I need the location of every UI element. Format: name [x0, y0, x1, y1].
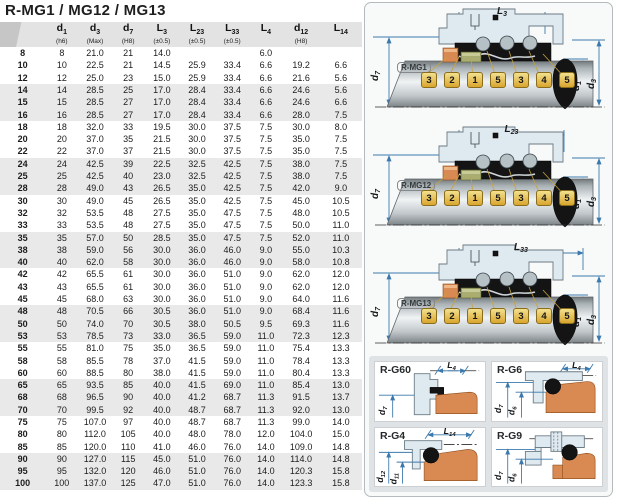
size-cell: 58 [0, 355, 45, 367]
value-cell: 23.0 [145, 170, 179, 182]
size-cell: 22 [0, 145, 45, 157]
value-cell [320, 47, 362, 59]
value-cell: 48.7 [179, 416, 215, 428]
value-cell: 75 [45, 416, 78, 428]
value-cell: 35.0 [179, 207, 215, 219]
value-cell [179, 47, 215, 59]
size-cell: 65 [0, 379, 45, 391]
value-cell: 6.6 [249, 59, 282, 71]
value-cell: 68 [45, 391, 78, 403]
table-row: 8080112.010540.048.078.012.0104.015.0 [0, 428, 362, 440]
value-cell: 13.3 [320, 367, 362, 379]
value-cell: 45.0 [145, 453, 179, 465]
dim-label-d7: d7 [370, 70, 382, 81]
value-cell: 6.0 [249, 47, 282, 59]
value-cell: 35.0 [179, 232, 215, 244]
column-header: d1(h6) [45, 22, 78, 47]
size-cell: 35 [0, 232, 45, 244]
column-header: d3(Max) [78, 22, 111, 47]
value-cell: 13.0 [320, 379, 362, 391]
value-cell: 37.5 [215, 133, 249, 145]
value-cell: 40 [112, 170, 145, 182]
value-cell: 26.5 [145, 195, 179, 207]
value-cell: 30.0 [145, 293, 179, 305]
size-cell: 8 [0, 47, 45, 59]
value-cell: 50 [112, 232, 145, 244]
table-row: 404062.05830.036.046.09.058.010.8 [0, 256, 362, 268]
table-row: 383859.05630.036.046.09.055.010.3 [0, 244, 362, 256]
table-row: 7575107.09740.048.768.711.399.014.0 [0, 416, 362, 428]
value-cell: 15 [45, 96, 78, 108]
value-cell: 14.0 [320, 416, 362, 428]
value-cell: 37.5 [215, 145, 249, 157]
value-cell: 17.0 [145, 109, 179, 121]
value-cell: 92.0 [282, 404, 319, 416]
value-cell: 59.0 [215, 330, 249, 342]
value-cell: 35 [112, 133, 145, 145]
card-label: R-G60 [380, 364, 411, 376]
value-cell: 61 [112, 268, 145, 280]
dim-label-top: L23 [505, 124, 519, 136]
value-cell: 96.5 [78, 391, 111, 403]
value-cell: 78.0 [215, 428, 249, 440]
size-cell: 32 [0, 207, 45, 219]
value-cell: 14 [45, 84, 78, 96]
callout-chip: 3 [421, 308, 437, 324]
value-cell: 33.4 [215, 96, 249, 108]
value-cell: 24.6 [282, 84, 319, 96]
size-cell: 18 [0, 121, 45, 133]
value-cell: 27.5 [145, 207, 179, 219]
value-cell: 69.0 [215, 379, 249, 391]
table-row: 161628.52717.028.433.46.628.07.5 [0, 109, 362, 121]
value-cell: 37.5 [215, 121, 249, 133]
size-cell: 68 [0, 391, 45, 403]
value-cell: 11.3 [249, 416, 282, 428]
callout-chip: 4 [536, 72, 552, 88]
value-cell: 11.0 [249, 342, 282, 354]
column-header: L3(±0.5) [145, 22, 179, 47]
callout-chip: 5 [559, 190, 575, 206]
value-cell: 30.0 [179, 145, 215, 157]
value-cell: 7.5 [249, 182, 282, 194]
column-header: L23(±0.5) [179, 22, 215, 47]
value-cell: 10.8 [320, 256, 362, 268]
table-row: 686896.59040.041.268.711.391.513.7 [0, 391, 362, 403]
value-cell: 57.0 [78, 232, 111, 244]
value-cell: 40.0 [145, 379, 179, 391]
value-cell: 14.8 [320, 441, 362, 453]
value-cell: 15.8 [320, 465, 362, 477]
size-cell: 48 [0, 305, 45, 317]
value-cell: 90 [45, 453, 78, 465]
value-cell: 76.0 [215, 441, 249, 453]
value-cell: 62.0 [78, 256, 111, 268]
value-cell: 97 [112, 416, 145, 428]
seal-diagram-r-mg13: L33 d7 d1 d3 R-MG13 3215345 [367, 240, 611, 357]
size-cell: 16 [0, 109, 45, 121]
value-cell: 115 [112, 453, 145, 465]
value-cell: 8.0 [320, 121, 362, 133]
value-cell: 48 [112, 219, 145, 231]
value-cell: 14.0 [249, 441, 282, 453]
callout-chip: 3 [421, 190, 437, 206]
value-cell: 48 [45, 305, 78, 317]
dim-label-l4: L4 [572, 362, 581, 372]
value-cell: 7.5 [320, 170, 362, 182]
value-cell: 46.0 [215, 256, 249, 268]
value-cell: 30.0 [145, 268, 179, 280]
value-cell: 7.5 [249, 219, 282, 231]
value-cell: 30.5 [145, 305, 179, 317]
size-cell: 10 [0, 59, 45, 71]
seal-diagram-r-mg12: L23 d7 d1 d3 R-MG12 3215345 [367, 122, 611, 239]
value-cell: 9.0 [320, 182, 362, 194]
value-cell: 10.5 [320, 207, 362, 219]
value-cell: 40.0 [145, 428, 179, 440]
callout-chip: 4 [536, 308, 552, 324]
value-cell: 22.5 [145, 158, 179, 170]
size-cell: 20 [0, 133, 45, 145]
value-cell: 53 [45, 330, 78, 342]
value-cell: 9.0 [249, 305, 282, 317]
card-label: R-G6 [497, 364, 522, 376]
size-cell: 43 [0, 281, 45, 293]
detail-card-r-g6: R-G6 d7 d6 L4 [491, 361, 603, 422]
value-cell: 6.6 [320, 59, 362, 71]
value-cell: 37.0 [145, 355, 179, 367]
callout-chip: 2 [444, 190, 460, 206]
value-cell: 11.0 [249, 379, 282, 391]
value-cell: 16 [45, 109, 78, 121]
value-cell: 25.0 [78, 72, 111, 84]
value-cell: 42.5 [215, 158, 249, 170]
size-cell: 55 [0, 342, 45, 354]
table-row: 151528.52717.028.433.46.624.66.6 [0, 96, 362, 108]
card-label: R-G4 [380, 430, 405, 442]
size-cell: 33 [0, 219, 45, 231]
callout-chip: 5 [559, 308, 575, 324]
value-cell: 80 [45, 428, 78, 440]
value-cell: 76.0 [215, 465, 249, 477]
detail-card-r-g60: R-G60 d7 L4 [374, 361, 486, 422]
value-cell: 28 [45, 182, 78, 194]
value-cell: 78.4 [282, 355, 319, 367]
value-cell: 104.0 [282, 428, 319, 440]
value-cell: 109.0 [282, 441, 319, 453]
value-cell: 11.0 [249, 330, 282, 342]
value-cell: 69.3 [282, 318, 319, 330]
value-cell: 20 [45, 133, 78, 145]
table-row: 202037.03521.530.037.57.535.07.5 [0, 133, 362, 145]
value-cell: 15.0 [145, 72, 179, 84]
value-cell: 99.0 [282, 416, 319, 428]
value-cell: 11.3 [249, 404, 282, 416]
value-cell: 59.0 [215, 367, 249, 379]
callout-chip: 2 [444, 308, 460, 324]
value-cell: 42.0 [282, 182, 319, 194]
value-cell: 33 [45, 219, 78, 231]
value-cell: 21 [112, 47, 145, 59]
value-cell: 41.5 [179, 379, 215, 391]
value-cell: 11.6 [320, 305, 362, 317]
value-cell: 37.0 [78, 133, 111, 145]
size-cell: 38 [0, 244, 45, 256]
dim-label-d12: d12 [375, 470, 387, 483]
value-cell: 75.4 [282, 342, 319, 354]
size-cell: 14 [0, 84, 45, 96]
value-cell: 45 [112, 195, 145, 207]
dim-label-l4: L4 [447, 362, 456, 372]
value-cell: 28.4 [179, 109, 215, 121]
value-cell: 11.0 [320, 232, 362, 244]
value-cell: 61 [112, 281, 145, 293]
value-cell: 40.0 [145, 404, 179, 416]
table-row: 707099.59240.048.768.711.392.013.0 [0, 404, 362, 416]
value-cell: 38 [45, 244, 78, 256]
value-cell: 25.9 [179, 59, 215, 71]
value-cell: 95 [45, 465, 78, 477]
callout-chip: 5 [490, 72, 506, 88]
size-cell: 28 [0, 182, 45, 194]
callout-chip: 5 [559, 72, 575, 88]
callout-chip: 1 [467, 72, 483, 88]
value-cell: 80.4 [282, 367, 319, 379]
value-cell: 33.4 [215, 59, 249, 71]
dim-label-d7: d7 [377, 406, 389, 415]
table-row: 8821.02114.06.0 [0, 47, 362, 59]
value-cell: 68.7 [215, 404, 249, 416]
value-cell: 42.5 [215, 195, 249, 207]
value-cell: 45.0 [282, 195, 319, 207]
value-cell: 28.0 [282, 109, 319, 121]
value-cell: 35.0 [282, 145, 319, 157]
detail-card-r-g9: R-G9 d7 d6 [491, 427, 603, 488]
size-cell: 85 [0, 441, 45, 453]
column-header: L14 [320, 22, 362, 47]
value-cell: 32 [45, 207, 78, 219]
value-cell: 58 [45, 355, 78, 367]
value-cell: 13.3 [320, 355, 362, 367]
table-row: 535378.57333.036.559.011.072.312.3 [0, 330, 362, 342]
value-cell: 36.0 [179, 256, 215, 268]
value-cell: 112.0 [78, 428, 111, 440]
value-cell: 15.8 [320, 477, 362, 489]
value-cell: 7.5 [320, 145, 362, 157]
value-cell: 47.5 [215, 219, 249, 231]
value-cell: 36.0 [179, 281, 215, 293]
value-cell: 46.0 [215, 244, 249, 256]
value-cell: 23 [112, 72, 145, 84]
value-cell: 14.8 [320, 453, 362, 465]
value-cell: 21.6 [282, 72, 319, 84]
value-cell: 28.5 [78, 109, 111, 121]
table-header-row: d1(h6)d3(Max)d7(H8)L3(±0.5)L23(±0.5)L33(… [0, 22, 362, 47]
value-cell: 49.0 [78, 195, 111, 207]
value-cell: 37 [112, 145, 145, 157]
value-cell: 70.5 [78, 305, 111, 317]
value-cell: 14.0 [145, 47, 179, 59]
value-cell: 64.0 [282, 293, 319, 305]
value-cell: 30.5 [145, 318, 179, 330]
value-cell: 7.5 [249, 232, 282, 244]
value-cell: 36.0 [179, 244, 215, 256]
table-row: 101022.52114.525.933.46.619.26.6 [0, 59, 362, 71]
value-cell: 28.5 [78, 84, 111, 96]
value-cell: 9.0 [249, 268, 282, 280]
value-cell: 75 [112, 342, 145, 354]
size-cell: 100 [0, 477, 45, 489]
value-cell: 30.0 [282, 121, 319, 133]
dim-label-l14: L14 [444, 428, 457, 438]
value-cell: 137.0 [78, 477, 111, 489]
value-cell: 50 [45, 318, 78, 330]
value-cell: 36.0 [179, 305, 215, 317]
value-cell: 33.4 [215, 72, 249, 84]
column-header [0, 22, 45, 47]
size-cell: 90 [0, 453, 45, 465]
value-cell: 32.5 [179, 158, 215, 170]
value-cell: 48.0 [179, 428, 215, 440]
value-cell: 6.6 [249, 109, 282, 121]
table-row: 606088.58038.041.559.011.080.413.3 [0, 367, 362, 379]
value-cell: 26.5 [145, 182, 179, 194]
callout-chip: 3 [421, 72, 437, 88]
callout-chip: 5 [490, 190, 506, 206]
value-cell [282, 47, 319, 59]
value-cell: 14.0 [249, 465, 282, 477]
page-title: R-MG1 / MG12 / MG13 [5, 2, 166, 19]
value-cell: 78 [112, 355, 145, 367]
value-cell: 63 [112, 293, 145, 305]
value-cell: 27.5 [145, 219, 179, 231]
value-cell: 38.0 [282, 158, 319, 170]
callout-chip: 1 [467, 190, 483, 206]
size-cell: 15 [0, 96, 45, 108]
value-cell: 85 [112, 379, 145, 391]
dim-label-top: L3 [497, 6, 507, 18]
value-cell: 27 [112, 96, 145, 108]
value-cell: 32.5 [179, 170, 215, 182]
value-cell: 35.0 [179, 195, 215, 207]
table-row: 323253.54827.535.047.57.548.010.5 [0, 207, 362, 219]
value-cell: 11.3 [249, 391, 282, 403]
value-cell: 47.5 [215, 232, 249, 244]
value-cell: 10.5 [320, 195, 362, 207]
value-cell: 42 [45, 268, 78, 280]
column-header: L4 [249, 22, 282, 47]
value-cell: 7.5 [249, 121, 282, 133]
value-cell: 36.0 [179, 293, 215, 305]
value-cell: 5.6 [320, 72, 362, 84]
value-cell: 21.5 [145, 133, 179, 145]
dim-label-d7: d7 [370, 188, 382, 199]
value-cell: 18 [45, 121, 78, 133]
size-cell: 25 [0, 170, 45, 182]
value-cell: 30 [45, 195, 78, 207]
value-cell: 12.0 [320, 281, 362, 293]
value-cell: 13.0 [320, 404, 362, 416]
value-cell: 5.6 [320, 84, 362, 96]
value-cell: 100 [45, 477, 78, 489]
value-cell: 45 [45, 293, 78, 305]
value-cell: 93.5 [78, 379, 111, 391]
value-cell: 7.5 [320, 109, 362, 121]
value-cell: 41.2 [179, 391, 215, 403]
value-cell: 41.5 [179, 367, 215, 379]
table-row: 353557.05028.535.047.57.552.011.0 [0, 232, 362, 244]
size-cell: 50 [0, 318, 45, 330]
value-cell: 62.0 [282, 268, 319, 280]
value-cell: 47.0 [145, 477, 179, 489]
value-cell: 15.0 [320, 428, 362, 440]
value-cell: 6.6 [249, 96, 282, 108]
table-row: 505074.07030.538.050.59.569.311.6 [0, 318, 362, 330]
value-cell: 9.5 [249, 318, 282, 330]
dimensions-table-wrap: d1(h6)d3(Max)d7(H8)L3(±0.5)L23(±0.5)L33(… [0, 22, 362, 490]
table-row: 424265.56130.036.051.09.062.012.0 [0, 268, 362, 280]
value-cell: 81.0 [78, 342, 111, 354]
column-header: d12(H8) [282, 22, 319, 47]
value-cell: 68.7 [215, 391, 249, 403]
value-cell: 11.6 [320, 293, 362, 305]
size-cell: 30 [0, 195, 45, 207]
value-cell: 30.0 [145, 281, 179, 293]
value-cell: 49.0 [78, 182, 111, 194]
value-cell: 11.0 [249, 355, 282, 367]
dim-label-d6: d6 [507, 472, 519, 481]
value-cell: 39 [112, 158, 145, 170]
value-cell: 68.0 [78, 293, 111, 305]
value-cell: 51.0 [215, 293, 249, 305]
size-cell: 12 [0, 72, 45, 84]
value-cell: 51.0 [215, 281, 249, 293]
value-cell: 43 [45, 281, 78, 293]
value-cell: 38.0 [179, 318, 215, 330]
value-cell: 125 [112, 477, 145, 489]
value-cell: 51.0 [179, 465, 215, 477]
value-cell: 58.0 [282, 256, 319, 268]
callout-row: 3215345 [421, 308, 575, 324]
value-cell: 7.5 [249, 158, 282, 170]
value-cell: 90 [112, 391, 145, 403]
seal-diagram-r-mg1: L3 d7 d1 d3 R-MG1 3215345 [367, 4, 611, 121]
value-cell: 85.5 [78, 355, 111, 367]
value-cell: 46.0 [179, 441, 215, 453]
value-cell: 38.0 [145, 367, 179, 379]
value-cell: 99.5 [78, 404, 111, 416]
value-cell: 7.5 [320, 158, 362, 170]
value-cell: 70 [112, 318, 145, 330]
table-row: 181832.03319.530.037.57.530.08.0 [0, 121, 362, 133]
value-cell: 21.5 [145, 145, 179, 157]
value-cell: 17.0 [145, 84, 179, 96]
dim-label-top: L33 [514, 242, 528, 254]
column-header: d7(H8) [112, 22, 145, 47]
value-cell: 7.5 [320, 133, 362, 145]
value-cell: 48.7 [179, 404, 215, 416]
dim-label-d7: d7 [493, 404, 505, 413]
value-cell: 7.5 [249, 170, 282, 182]
table-row: 656593.58540.041.569.011.085.413.0 [0, 379, 362, 391]
value-cell: 60 [45, 367, 78, 379]
value-cell: 36.0 [179, 268, 215, 280]
value-cell: 55.0 [282, 244, 319, 256]
value-cell: 30.0 [145, 256, 179, 268]
card-label: R-G9 [497, 430, 522, 442]
value-cell: 12 [45, 72, 78, 84]
table-row: 252542.54023.032.542.57.538.07.5 [0, 170, 362, 182]
